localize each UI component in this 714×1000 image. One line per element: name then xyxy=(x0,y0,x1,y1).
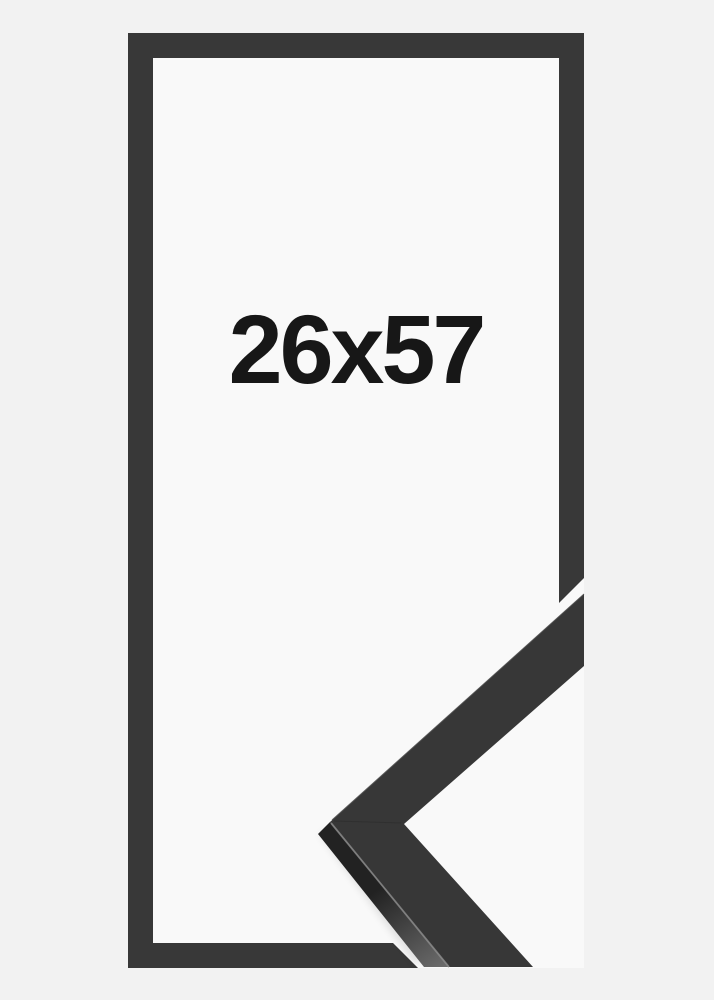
frame-product-graphic: 26x57 xyxy=(0,0,714,1000)
frame-bottom-bar xyxy=(128,943,418,968)
frame-right-bar xyxy=(559,33,584,603)
frame-top-bar xyxy=(128,33,584,58)
product-image: 26x57 xyxy=(0,0,714,1000)
frame-size-label: 26x57 xyxy=(229,295,484,404)
frame-left-bar xyxy=(128,33,153,968)
